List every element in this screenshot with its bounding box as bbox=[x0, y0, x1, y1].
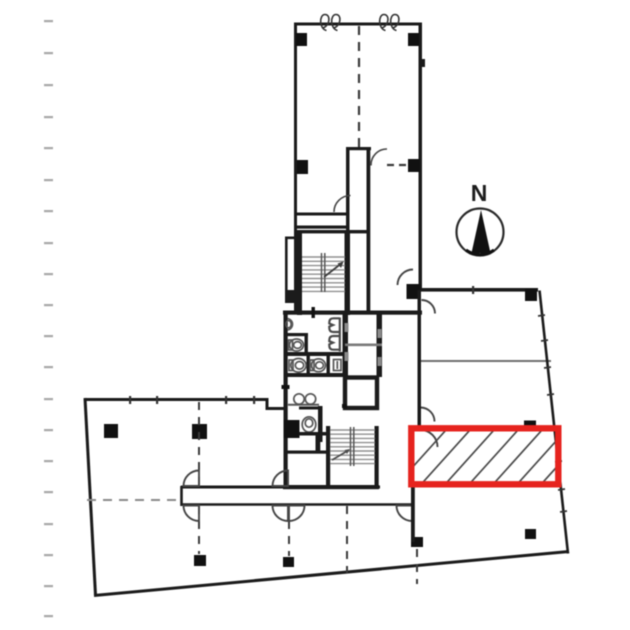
svg-text:N: N bbox=[471, 180, 488, 206]
